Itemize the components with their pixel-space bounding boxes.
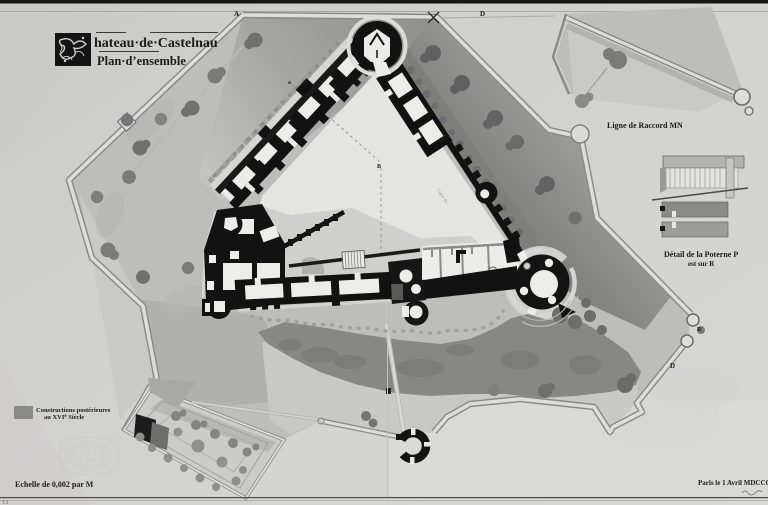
svg-text:D: D — [670, 362, 675, 370]
svg-text:est sur R: est sur R — [688, 260, 715, 268]
svg-text:Echelle de 0,002 par M: Echelle de 0,002 par M — [15, 480, 94, 489]
svg-text:Détail de la Poterne P: Détail de la Poterne P — [664, 250, 738, 259]
svg-text:Ligne de Raccord MN: Ligne de Raccord MN — [607, 121, 683, 130]
svg-text:Plan·d’ensemble: Plan·d’ensemble — [97, 54, 186, 68]
svg-text:D: D — [480, 10, 485, 18]
svg-text:R: R — [697, 327, 702, 333]
svg-text:A: A — [234, 10, 239, 18]
svg-text:a: a — [288, 80, 291, 86]
svg-text:Paris le 1 Avril MDCCCC: Paris le 1 Avril MDCCCC — [698, 479, 768, 487]
svg-text:f.2: f.2 — [3, 501, 9, 505]
svg-text:Constructions postérieures: Constructions postérieures — [36, 407, 111, 414]
svg-text:au XVIe Siècle: au XVIe Siècle — [44, 414, 84, 421]
svg-text:hateau·de·Castelnau: hateau·de·Castelnau — [94, 36, 218, 51]
svg-text:SB: SB — [76, 444, 100, 469]
svg-text:B: B — [377, 164, 381, 170]
